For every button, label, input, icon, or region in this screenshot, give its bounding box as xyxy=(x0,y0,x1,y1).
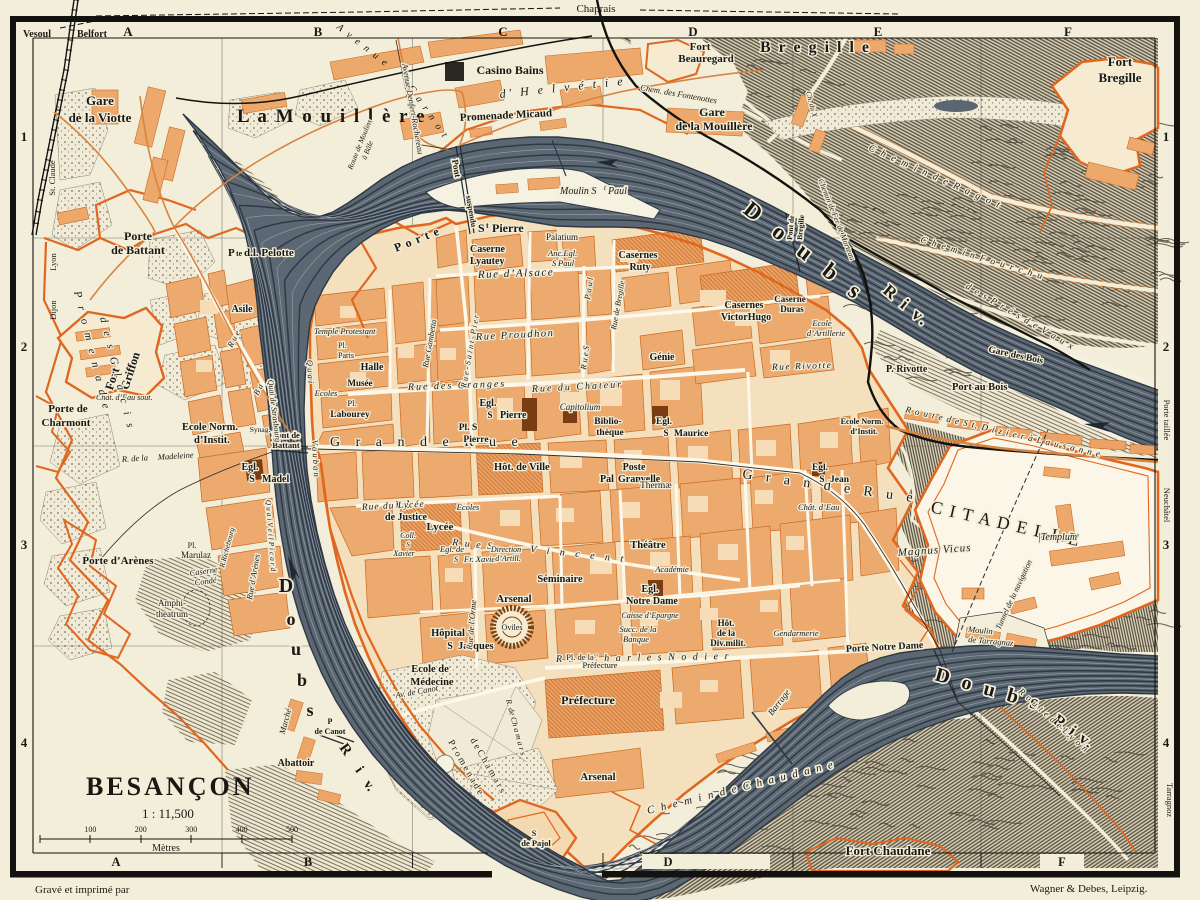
svg-text:t: t xyxy=(486,221,489,230)
svg-text:Chaprais: Chaprais xyxy=(576,3,615,15)
svg-text:VictorHugo: VictorHugo xyxy=(721,312,771,323)
svg-text:1 : 11,500: 1 : 11,500 xyxy=(142,806,194,821)
svg-text:Ecoles: Ecoles xyxy=(456,502,480,512)
svg-text:Arsenal: Arsenal xyxy=(497,594,532,605)
svg-text:Temple Protestant: Temple Protestant xyxy=(314,326,376,336)
svg-text:Ruty: Ruty xyxy=(629,262,650,273)
svg-text:Gendarmerie: Gendarmerie xyxy=(773,628,819,638)
svg-text:Gare: Gare xyxy=(86,93,114,108)
svg-text:Abattoir: Abattoir xyxy=(278,758,315,769)
svg-text:Académie: Académie xyxy=(654,564,689,574)
svg-text:Fort: Fort xyxy=(690,41,711,53)
svg-text:3: 3 xyxy=(1163,537,1170,552)
svg-text:BESANÇON: BESANÇON xyxy=(86,772,254,801)
svg-text:Paul: Paul xyxy=(607,186,627,197)
svg-text:S: S xyxy=(663,428,668,438)
svg-text:Pl. S: Pl. S xyxy=(459,423,477,433)
svg-text:Anc.Egl.: Anc.Egl. xyxy=(547,248,577,258)
svg-text:S: S xyxy=(478,221,485,235)
svg-text:G r a n d e R u e: G r a n d e R u e xyxy=(330,435,524,450)
svg-text:d’Instit.: d’Instit. xyxy=(850,427,877,436)
svg-text:de la Viotte: de la Viotte xyxy=(69,110,132,125)
svg-text:Tarragnoz: Tarragnoz xyxy=(1165,783,1175,818)
svg-text:Théâtre: Théâtre xyxy=(630,540,666,551)
svg-text:P: P xyxy=(228,247,235,259)
svg-text:Halle: Halle xyxy=(361,362,384,373)
svg-text:u: u xyxy=(291,639,301,659)
svg-text:Chât. d’Eau: Chât. d’Eau xyxy=(798,502,840,512)
svg-text:Porte d’Arènes: Porte d’Arènes xyxy=(82,555,154,567)
svg-text:b: b xyxy=(297,670,307,690)
svg-text:Fort: Fort xyxy=(1108,54,1133,69)
svg-text:Asile: Asile xyxy=(231,304,253,315)
svg-text:Duras: Duras xyxy=(780,304,804,314)
svg-text:Musée: Musée xyxy=(348,378,373,388)
svg-text:Pal: Pal xyxy=(600,474,614,485)
svg-text:Préfecture: Préfecture xyxy=(583,660,618,670)
svg-text:Labourey: Labourey xyxy=(330,410,370,420)
svg-text:de la Mouillère: de la Mouillère xyxy=(675,119,753,133)
svg-text:Egl.: Egl. xyxy=(242,462,259,473)
svg-text:4: 4 xyxy=(1163,735,1170,750)
svg-text:1: 1 xyxy=(21,129,28,144)
svg-text:Div.milit.: Div.milit. xyxy=(710,638,746,648)
svg-text:F: F xyxy=(1064,24,1072,39)
svg-text:Ecole Norm.: Ecole Norm. xyxy=(182,422,238,433)
svg-text:S: S xyxy=(447,641,453,652)
svg-text:P. Rivotte: P. Rivotte xyxy=(886,364,928,375)
svg-text:S: S xyxy=(454,555,458,564)
svg-text:S: S xyxy=(487,410,492,420)
svg-text:F: F xyxy=(1058,855,1066,869)
svg-text:4: 4 xyxy=(21,735,28,750)
svg-text:500: 500 xyxy=(286,825,298,834)
svg-text:Vesoul: Vesoul xyxy=(23,29,51,40)
svg-text:de Pajol: de Pajol xyxy=(521,838,551,848)
svg-text:Bregille: Bregille xyxy=(1098,70,1141,85)
svg-text:Neuchâtel: Neuchâtel xyxy=(1162,488,1172,523)
svg-text:Caisse d’Epargne: Caisse d’Epargne xyxy=(621,611,679,620)
svg-text:2: 2 xyxy=(1163,339,1170,354)
svg-text:Hôt.: Hôt. xyxy=(718,618,735,628)
svg-text:C: C xyxy=(498,24,507,39)
svg-text:S: S xyxy=(532,829,537,838)
svg-text:de Battant: de Battant xyxy=(111,243,165,257)
svg-text:S: S xyxy=(406,540,410,549)
svg-text:Pierre: Pierre xyxy=(500,410,527,421)
svg-text:Caserne: Caserne xyxy=(774,294,806,304)
svg-text:d’Artill.: d’Artill. xyxy=(495,554,521,563)
svg-text:3: 3 xyxy=(21,537,28,552)
svg-text:Ecoles: Ecoles xyxy=(314,388,338,398)
svg-text:1: 1 xyxy=(1163,129,1170,144)
svg-text:Oviles: Oviles xyxy=(502,623,523,632)
svg-text:S: S xyxy=(819,474,824,484)
svg-text:Q u a i: Q u a i xyxy=(305,360,316,385)
svg-text:Maurice: Maurice xyxy=(674,429,708,439)
svg-text:Beauregard: Beauregard xyxy=(678,53,733,65)
svg-text:Marulaz: Marulaz xyxy=(181,550,211,560)
svg-text:Pierre: Pierre xyxy=(463,435,488,445)
svg-text:Caserne: Caserne xyxy=(470,244,506,255)
svg-text:St. Claude: St. Claude xyxy=(47,160,57,196)
svg-text:|Templum: |Templum xyxy=(1038,532,1077,543)
svg-text:Ecole de: Ecole de xyxy=(411,664,449,675)
svg-text:D: D xyxy=(279,575,293,597)
svg-text:Pl.: Pl. xyxy=(347,398,356,408)
svg-text:Banque: Banque xyxy=(623,634,649,644)
svg-text:Pierre: Pierre xyxy=(492,221,524,235)
svg-text:Fr. Xavier: Fr. Xavier xyxy=(463,554,499,564)
svg-text:Capitolium: Capitolium xyxy=(560,402,601,412)
svg-text:Amphi-: Amphi- xyxy=(158,598,186,608)
svg-text:100: 100 xyxy=(84,825,96,834)
svg-text:L a M o u i l l è r e: L a M o u i l l è r e xyxy=(237,106,426,127)
svg-text:Coll.: Coll. xyxy=(400,531,416,540)
svg-text:theatrum: theatrum xyxy=(156,609,188,619)
svg-text:d.l. Pelotte: d.l. Pelotte xyxy=(244,247,294,259)
svg-text:V a u b a n: V a u b a n xyxy=(310,440,322,477)
svg-text:Wagner & Debes, Leipzig.: Wagner & Debes, Leipzig. xyxy=(1030,883,1148,895)
svg-text:Porte de: Porte de xyxy=(48,403,88,415)
svg-text:Biblio-: Biblio- xyxy=(594,417,621,427)
svg-text:A: A xyxy=(123,24,133,39)
svg-text:200: 200 xyxy=(135,825,147,834)
svg-text:400: 400 xyxy=(236,825,248,834)
svg-text:D: D xyxy=(688,24,697,39)
svg-text:o: o xyxy=(287,609,296,629)
svg-text:Casino Bains: Casino Bains xyxy=(476,63,543,77)
svg-text:Lycée: Lycée xyxy=(427,521,454,533)
svg-text:Direction: Direction xyxy=(490,545,521,554)
svg-text:Arsenal: Arsenal xyxy=(581,772,616,783)
svg-text:B: B xyxy=(314,24,323,39)
svg-text:R. de la: R. de la xyxy=(120,452,148,464)
svg-text:E: E xyxy=(874,24,883,39)
svg-text:Charmont: Charmont xyxy=(42,417,91,429)
svg-text:Jean: Jean xyxy=(830,475,850,485)
svg-text:Hôt. de Ville: Hôt. de Ville xyxy=(494,462,550,473)
svg-text:Paris: Paris xyxy=(338,351,354,360)
svg-text:Porte: Porte xyxy=(124,229,153,243)
svg-text:Casernes: Casernes xyxy=(619,250,658,261)
svg-text:Poste: Poste xyxy=(623,462,646,473)
svg-text:Pl.: Pl. xyxy=(188,541,197,550)
svg-text:Belfort: Belfort xyxy=(77,29,108,40)
svg-text:de Justice: de Justice xyxy=(385,512,428,523)
svg-text:Madel: Madel xyxy=(262,474,289,485)
svg-text:Port au Bois: Port au Bois xyxy=(952,382,1007,393)
svg-text:D: D xyxy=(663,855,672,869)
svg-text:Synag.: Synag. xyxy=(250,425,271,434)
svg-text:Génie: Génie xyxy=(650,352,676,363)
svg-text:Gare: Gare xyxy=(699,105,725,119)
svg-text:Moulin S: Moulin S xyxy=(559,186,596,197)
svg-text:Egl.: Egl. xyxy=(642,584,659,595)
svg-text:Lyautey: Lyautey xyxy=(470,256,504,267)
svg-text:Lyon: Lyon xyxy=(48,253,58,271)
svg-text:Succ. de la: Succ. de la xyxy=(619,624,656,634)
svg-text:Thermæ: Thermæ xyxy=(640,481,672,491)
svg-text:Dijon: Dijon xyxy=(48,300,58,320)
svg-text:P: P xyxy=(328,717,333,726)
svg-text:2: 2 xyxy=(21,339,28,354)
svg-text:B: B xyxy=(304,855,312,869)
svg-text:Porte taillée: Porte taillée xyxy=(1162,400,1172,441)
svg-text:de la: de la xyxy=(717,628,736,638)
svg-text:d’Instit.: d’Instit. xyxy=(194,435,230,446)
svg-text:Fort Chaudane: Fort Chaudane xyxy=(846,843,931,858)
svg-text:Palatium: Palatium xyxy=(546,232,578,242)
svg-text:Egl.: Egl. xyxy=(480,398,497,409)
svg-text:Ecole Norm.: Ecole Norm. xyxy=(841,417,884,426)
svg-text:Casernes: Casernes xyxy=(725,300,764,311)
svg-text:te: te xyxy=(236,249,243,258)
svg-text:Ecole: Ecole xyxy=(811,318,832,328)
svg-text:de Canot: de Canot xyxy=(315,727,346,736)
svg-text:Paul: Paul xyxy=(557,258,575,268)
svg-text:B r e g i l l e: B r e g i l l e xyxy=(760,39,871,56)
svg-text:Egl.: Egl. xyxy=(656,417,672,427)
svg-text:Préfecture: Préfecture xyxy=(561,693,615,707)
svg-text:s: s xyxy=(306,700,313,720)
svg-text:Séminaire: Séminaire xyxy=(537,574,583,585)
svg-text:d’Artillerie: d’Artillerie xyxy=(807,328,845,338)
svg-text:Gravé et imprimé par: Gravé et imprimé par xyxy=(35,884,130,896)
svg-text:A: A xyxy=(111,855,120,869)
svg-text:Hôpital: Hôpital xyxy=(431,628,465,639)
svg-text:thèque: thèque xyxy=(596,428,623,438)
svg-text:300: 300 xyxy=(185,825,197,834)
svg-text:Notre Dame: Notre Dame xyxy=(626,596,678,607)
svg-text:Mètres: Mètres xyxy=(152,843,180,854)
svg-text:Pl.: Pl. xyxy=(338,341,347,350)
svg-text:Xavier: Xavier xyxy=(392,549,415,558)
svg-text:Egl.: Egl. xyxy=(812,463,828,473)
svg-text:S: S xyxy=(249,474,255,485)
